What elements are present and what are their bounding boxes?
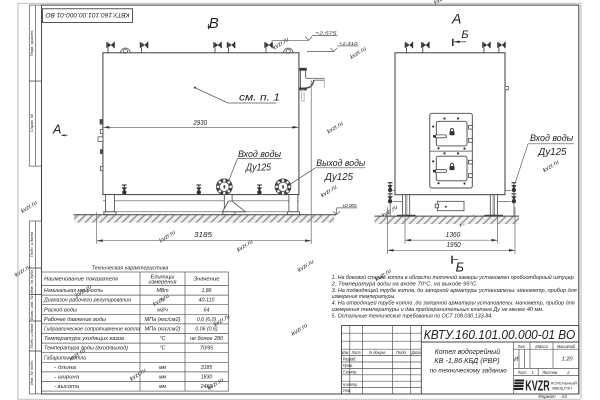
svg-text:МПа (кгс/см2): МПа (кгс/см2) bbox=[145, 327, 181, 333]
svg-text:Подп.: Подп. bbox=[396, 350, 407, 355]
svg-text:Диапазон рабочего регулировани: Диапазон рабочего регулирования bbox=[43, 298, 131, 304]
svg-text:Пров.: Пров. bbox=[343, 363, 353, 368]
svg-text:2460: 2460 bbox=[200, 384, 213, 390]
svg-text:Б: Б bbox=[456, 260, 464, 275]
svg-text:Н.контр.: Н.контр. bbox=[343, 382, 358, 387]
svg-text:Б: Б bbox=[461, 29, 468, 41]
svg-text:- длина: - длина bbox=[54, 365, 76, 371]
svg-text:Лист: Лист bbox=[517, 370, 527, 375]
svg-text:по техническому заданию: по техническому заданию bbox=[430, 366, 507, 374]
svg-text:- высота: - высота bbox=[54, 384, 79, 390]
svg-text:Инв. № дубл.: Инв. № дубл. bbox=[29, 269, 34, 294]
svg-text:МПа (кгс/см2): МПа (кгс/см2) bbox=[145, 317, 181, 323]
svg-text:Масса: Масса bbox=[535, 344, 548, 349]
svg-text:Подп. и дата: Подп. и дата bbox=[29, 323, 34, 349]
svg-text:Габариты котла: Габариты котла bbox=[44, 355, 86, 361]
svg-text:1:20: 1:20 bbox=[562, 356, 574, 362]
svg-text:см. п. 1: см. п. 1 bbox=[239, 92, 280, 103]
svg-text:мм: мм bbox=[159, 365, 167, 371]
svg-text:N докум.: N докум. bbox=[369, 350, 386, 355]
svg-text:Выход воды: Выход воды bbox=[316, 158, 365, 168]
svg-text:Вход воды: Вход воды bbox=[530, 133, 574, 143]
svg-text:KVZR: KVZR bbox=[525, 378, 550, 394]
svg-text:Температура воды (вход/выход): Температура воды (вход/выход) bbox=[44, 346, 128, 352]
svg-text:В: В bbox=[209, 15, 219, 32]
svg-text:3185: 3185 bbox=[201, 365, 213, 371]
svg-text:Масштаб: Масштаб bbox=[557, 344, 576, 349]
svg-text:1. На боковой стенке котла в: 1. На боковой стенке котла в области топ… bbox=[332, 274, 574, 281]
svg-text:1950: 1950 bbox=[447, 242, 461, 249]
svg-text:70/95: 70/95 bbox=[200, 346, 213, 352]
svg-text:не более 280: не более 280 bbox=[190, 336, 223, 342]
svg-text:1360: 1360 bbox=[446, 232, 461, 239]
svg-text:+2.410: +2.410 bbox=[339, 41, 358, 47]
svg-text:2. Температура воды на входе: 2. Температура воды на входе 70°С, на вы… bbox=[331, 281, 478, 287]
svg-text:Ду125: Ду125 bbox=[537, 146, 566, 158]
svg-text:А3: А3 bbox=[560, 394, 567, 399]
svg-text:0,06 (0,6): 0,06 (0,6) bbox=[195, 327, 217, 333]
svg-text:Лист: Лист bbox=[351, 350, 361, 355]
svg-text:%: % bbox=[160, 298, 165, 304]
svg-text:°С: °С bbox=[160, 346, 166, 352]
svg-text:+2.575: +2.575 bbox=[315, 30, 337, 36]
svg-text:Вход воды: Вход воды bbox=[238, 149, 281, 159]
svg-text:1,86: 1,86 bbox=[201, 288, 211, 294]
svg-text:Ду125: Ду125 bbox=[324, 171, 353, 183]
svg-text:Наименование показателя: Наименование показателя bbox=[44, 277, 118, 283]
svg-text:64: 64 bbox=[204, 307, 210, 313]
svg-text:измерения: измерения bbox=[149, 279, 177, 285]
svg-text:И: И bbox=[514, 357, 519, 363]
svg-text:- ширина: - ширина bbox=[54, 375, 79, 381]
svg-text:Инв. № подл.: Инв. № подл. bbox=[29, 360, 34, 385]
svg-text:Перв. примен.: Перв. примен. bbox=[29, 30, 34, 57]
svg-text:Ду125: Ду125 bbox=[245, 162, 271, 174]
svg-text:Лит.: Лит. bbox=[517, 344, 526, 349]
svg-text:мм: мм bbox=[159, 375, 167, 381]
svg-text:Номинальная мощность: Номинальная мощность bbox=[44, 288, 103, 294]
svg-text:3. На подводящей трубе котла,: 3. На подводящей трубе котла, до запорно… bbox=[332, 287, 577, 294]
svg-text:2930: 2930 bbox=[193, 120, 207, 127]
svg-text:мм: мм bbox=[159, 384, 167, 390]
svg-text:Разраб.: Разраб. bbox=[343, 357, 357, 362]
svg-text:измерения температуры и два пр: измерения температуры и два предохраните… bbox=[332, 307, 544, 313]
svg-text:КВТУ.160.101.00.000-01 ВО: КВТУ.160.101.00.000-01 ВО bbox=[45, 11, 129, 18]
svg-text:МВт: МВт bbox=[156, 288, 169, 294]
svg-text:Температура уходящих газов: Температура уходящих газов bbox=[44, 336, 124, 342]
svg-text:5. Остальные технические треб: 5. Остальные технические требования по О… bbox=[332, 313, 493, 319]
svg-text:Подп. и дата: Подп. и дата bbox=[29, 231, 34, 257]
svg-text:3185: 3185 bbox=[194, 232, 212, 239]
svg-text:°С: °С bbox=[160, 336, 166, 342]
svg-text:Справ. №: Справ. № bbox=[29, 113, 34, 132]
svg-text:КВ -1,86 КБД (РВР): КВ -1,86 КБД (РВР) bbox=[434, 358, 499, 365]
svg-text:Котел водогрейный: Котел водогрейный bbox=[435, 348, 500, 356]
svg-text:Взам. инв. №: Взам. инв. № bbox=[29, 295, 34, 320]
svg-text:КВТУ.160.101.00.000-01 ВО: КВТУ.160.101.00.000-01 ВО bbox=[424, 328, 576, 342]
svg-text:±0.000: ±0.000 bbox=[343, 203, 357, 209]
svg-text:Изм.: Изм. bbox=[342, 350, 350, 355]
svg-text:4. На отводящей трубе котла ,: 4. На отводящей трубе котла ,до запорной… bbox=[332, 300, 575, 307]
svg-text:Расход воды: Расход воды bbox=[44, 307, 77, 313]
svg-text:измерения температуры.: измерения температуры. bbox=[332, 294, 396, 300]
svg-text:Листов: Листов bbox=[541, 370, 558, 375]
svg-text:А: А bbox=[451, 11, 461, 27]
svg-text:1830: 1830 bbox=[201, 375, 213, 381]
svg-text:м3/ч: м3/ч bbox=[157, 307, 168, 313]
svg-text:40-110: 40-110 bbox=[199, 298, 215, 304]
svg-text:Т.контр.: Т.контр. bbox=[343, 370, 358, 375]
svg-text:Рабочее давление воды: Рабочее давление воды bbox=[44, 317, 106, 323]
svg-text:Дата: Дата bbox=[411, 350, 421, 355]
svg-text:ЗАВОД РЭП: ЗАВОД РЭП bbox=[552, 385, 572, 390]
svg-text:Формат: Формат bbox=[538, 394, 556, 399]
svg-text:Значение: Значение bbox=[194, 277, 220, 283]
svg-text:0,6 (6,0): 0,6 (6,0) bbox=[197, 317, 217, 323]
svg-text:Гидравлическое сопротивление к: Гидравлическое сопротивление котла bbox=[44, 327, 140, 333]
svg-text:Техническая характеристика: Техническая характеристика bbox=[92, 265, 169, 271]
svg-text:Утв.: Утв. bbox=[343, 388, 351, 393]
svg-text:1: 1 bbox=[532, 370, 534, 375]
svg-text:А: А bbox=[52, 123, 61, 137]
